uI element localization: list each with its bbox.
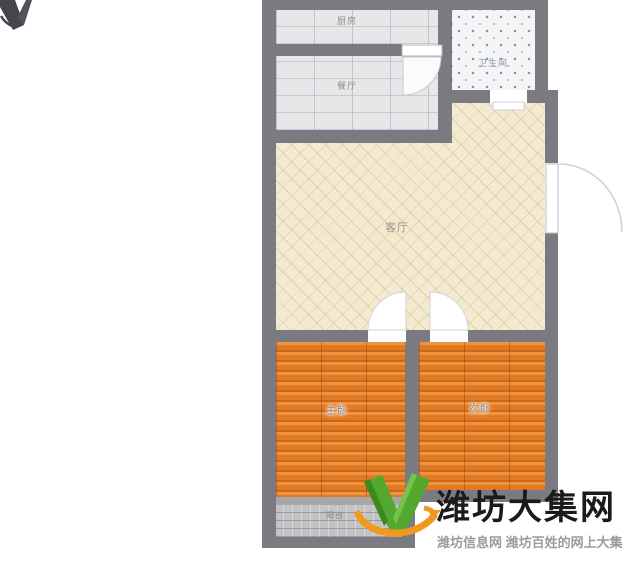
wall-bathroom-bottom-left [452,90,490,103]
wall-right-above-door [545,90,558,163]
wall-kitchen-dining [262,44,402,56]
dining-room-floor [276,56,438,130]
v-swoosh-logo-icon [354,466,440,558]
wall-left-outer [262,0,276,548]
wall-bathroom-right-outer [535,0,548,100]
compass-north-icon [0,0,40,46]
dining-label: 餐厅 [327,82,367,91]
kitchen-label: 厨房 [327,17,367,26]
wall-dining-living [262,130,452,143]
entrance-doorway [545,163,558,233]
entrance-door-swing [559,164,622,232]
floorplan-image: 厨房 餐厅 卫生间 客厅 主卧 次卧 阳台 潍坊大集网 潍坊信息网 潍坊百姓的网… [0,0,640,568]
bedroom-left-label: 主卧 [307,407,367,417]
wall-dining-bathroom-divider [438,0,452,143]
wall-top-bathroom [438,0,548,10]
watermark-tagline: 潍坊信息网 潍坊百姓的网上大集 [437,532,637,551]
wall-living-bedrooms-left [262,330,368,342]
bathroom-floor [452,10,535,90]
wall-right-below-door [545,233,558,502]
wall-top-kitchen [262,0,450,10]
bedroom-right-label: 次卧 [450,405,510,415]
kitchen-floor [276,10,438,44]
kitchen-door-leaf [402,45,442,56]
living-label: 客厅 [367,223,427,234]
entrance-door-leaf [546,164,558,233]
watermark-title: 潍坊大集网 [436,490,636,527]
wall-living-bedrooms-mid [406,330,430,342]
wall-living-bedrooms-right [468,330,558,342]
bathroom-label: 卫生间 [463,59,523,68]
